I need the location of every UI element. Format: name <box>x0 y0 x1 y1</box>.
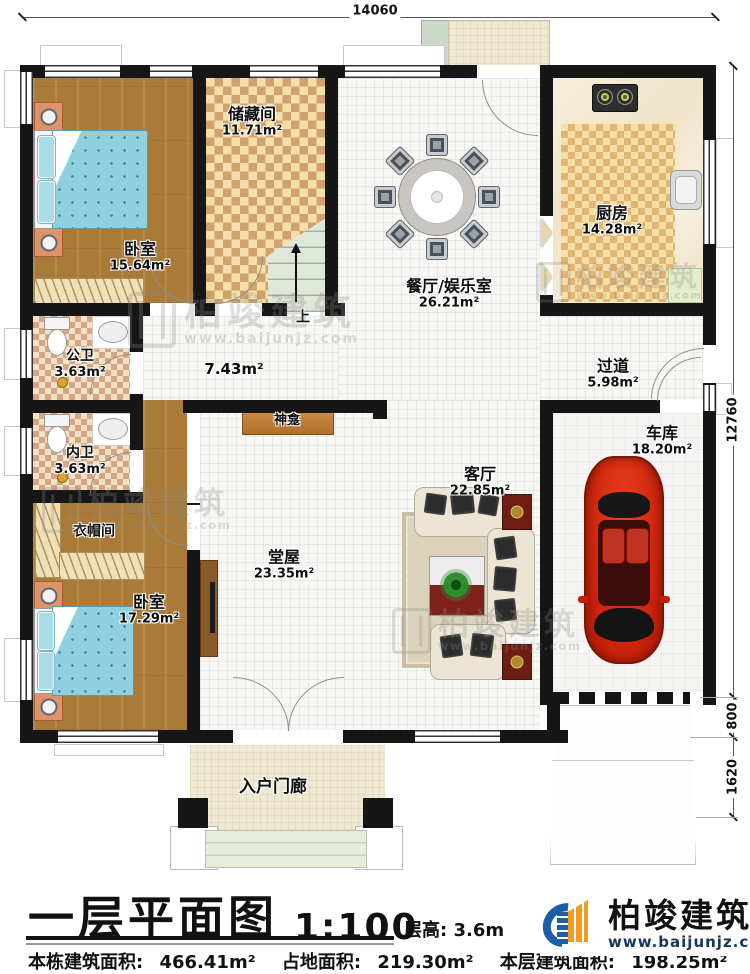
room-label-storage: 储藏间11.71m² <box>222 105 282 140</box>
burner-icon <box>617 89 633 105</box>
garage-door <box>553 692 690 704</box>
wall-garage-corner <box>547 692 560 743</box>
door-opening <box>150 303 195 316</box>
wall-garage-west <box>540 400 553 705</box>
burner-icon <box>597 89 613 105</box>
folding-door-icon <box>541 262 552 292</box>
kitchen-sink-basin <box>675 176 697 204</box>
window <box>20 428 33 474</box>
bath-sink <box>98 418 128 440</box>
driveway-line <box>552 760 694 761</box>
back-porch-floor <box>448 20 550 69</box>
stairs-arrow <box>295 250 297 302</box>
title-underline <box>26 936 394 940</box>
cloak-rack <box>35 502 61 578</box>
bath-sink <box>98 321 128 343</box>
dimension-extension <box>700 697 738 698</box>
sofa <box>487 528 535 634</box>
sofa-cushion <box>440 634 464 659</box>
plan-scale: 1:100 <box>294 907 419 948</box>
dimension-label-800: 800 <box>726 699 741 732</box>
wall-corridor-north <box>262 303 287 316</box>
wall-bath-divider <box>20 400 143 413</box>
room-label-main-hall: 堂屋23.35m² <box>254 548 314 583</box>
logo-icon <box>544 896 600 954</box>
title-underline-thin <box>26 943 394 945</box>
sofa-cushion <box>424 493 448 516</box>
lamp-icon <box>40 587 57 604</box>
dimension-label-right: 12760 <box>726 394 741 445</box>
dimension-extension <box>696 817 738 818</box>
logo-building-blue-icon <box>557 912 568 944</box>
window <box>415 730 500 743</box>
side-table <box>502 494 532 530</box>
pillow <box>38 181 55 223</box>
sofa-cushion <box>470 633 495 659</box>
room-label-dining: 餐厅/娱乐室26.21m² <box>406 277 492 312</box>
car-seat <box>602 528 625 564</box>
window <box>703 140 716 244</box>
dimension-extension <box>690 737 738 738</box>
floor-height: 层高: 3.6m <box>404 916 504 942</box>
window <box>250 65 318 78</box>
room-label-bedroom1: 卧室15.64m² <box>110 240 170 275</box>
company-website: www.baijunjz.com <box>608 933 750 951</box>
door-opening <box>130 450 143 492</box>
company-name: 柏竣建筑 <box>608 899 750 934</box>
window <box>20 330 33 378</box>
window <box>58 730 158 743</box>
nightstand <box>34 692 63 721</box>
bed <box>52 130 148 229</box>
plant-icon <box>440 569 472 601</box>
dining-chair <box>478 186 500 208</box>
room-label-shrine: 神龛 <box>274 413 300 429</box>
door-opening <box>130 352 143 394</box>
wall-kitchen-south <box>540 303 716 316</box>
wall-kitchen-west <box>540 78 553 216</box>
car-rear-window <box>598 492 650 518</box>
kitchen-cabinet <box>668 268 702 303</box>
dimension-label-top: 14060 <box>349 4 400 19</box>
room-label-corridor: 7.43m² <box>204 360 263 378</box>
dining-table-center <box>431 191 443 203</box>
room-label-hallway: 过道5.98m² <box>587 357 638 392</box>
wardrobe <box>34 278 144 305</box>
room-label-garage: 车库18.20m² <box>632 424 692 459</box>
stairs-up-label: 上 <box>296 310 310 327</box>
wall-corridor-north <box>195 303 215 316</box>
nightstand <box>34 102 63 131</box>
pillow <box>38 652 54 690</box>
wall-garage-north <box>540 400 660 413</box>
room-label-cloakroom: 衣帽间 <box>73 524 115 541</box>
sofa-cushion <box>493 566 517 592</box>
window-sill <box>40 45 122 67</box>
wall-storage-dining <box>325 78 338 312</box>
dimension-label-1620: 1620 <box>726 756 741 798</box>
sofa-cushion <box>494 536 518 561</box>
car-seat <box>626 528 649 564</box>
pillow <box>38 612 54 650</box>
side-table <box>502 644 532 680</box>
wall-shrine-stub <box>373 411 387 419</box>
stairs-arrowhead-icon <box>291 243 301 253</box>
window <box>150 65 192 78</box>
dining-chair <box>426 238 448 260</box>
window <box>20 640 33 700</box>
car <box>584 456 664 664</box>
room-label-living: 客厅22.85m² <box>450 465 510 500</box>
pillow <box>38 136 55 178</box>
lamp-icon <box>40 698 57 715</box>
company-logo: 柏竣建筑 www.baijunjz.com <box>540 894 750 956</box>
title-block: 一层平面图 1:100 层高: 3.6m 本栋建筑面积: 466.41m² 占地… <box>0 878 750 974</box>
lamp-icon <box>40 108 57 125</box>
car-windshield <box>594 608 654 642</box>
floor-vestibule <box>143 400 187 503</box>
sofa <box>430 624 506 680</box>
window <box>45 65 120 78</box>
door-opening <box>233 730 343 743</box>
sofa-cushion <box>494 598 517 622</box>
lamp-icon <box>40 234 57 251</box>
door-opening <box>477 65 540 78</box>
room-label-bath-private: 内卫3.63m² <box>54 445 105 477</box>
porch-steps <box>205 830 367 868</box>
wall-shrine <box>183 400 387 413</box>
wall-corridor-north <box>325 303 345 316</box>
floor-plan-canvas: 卧室15.64m² 储藏间11.71m² 餐厅/娱乐室26.21m² 厨房14.… <box>0 0 750 974</box>
car-mirror-icon <box>659 596 670 603</box>
door-opening <box>215 303 262 316</box>
wall-corridor-north <box>20 303 150 316</box>
car-mirror-icon <box>578 596 589 603</box>
room-label-kitchen: 厨房14.28m² <box>582 204 642 239</box>
folding-door-icon <box>541 218 552 248</box>
window-sill <box>343 45 445 67</box>
window <box>703 385 716 411</box>
room-label-bedroom2: 卧室17.29m² <box>119 593 179 628</box>
dining-chair <box>426 134 448 156</box>
window <box>20 72 33 124</box>
window-sill <box>54 744 164 756</box>
room-label-bath-public: 公卫3.63m² <box>54 348 105 380</box>
gold-ring-icon <box>511 656 524 669</box>
room-label-porch: 入户门廊 <box>239 777 307 797</box>
tv-icon <box>210 582 215 633</box>
dining-chair <box>374 186 396 208</box>
door-opening <box>660 400 703 413</box>
window <box>345 65 440 78</box>
gold-ring-icon <box>511 506 524 519</box>
porch-pillar <box>363 798 393 828</box>
driveway <box>550 705 696 865</box>
window-sill <box>716 138 734 248</box>
nightstand <box>34 228 63 257</box>
door-opening <box>187 505 200 550</box>
door-opening <box>703 345 716 383</box>
cloak-rack <box>59 552 145 580</box>
tv-cabinet <box>200 560 218 657</box>
porch-pillar <box>178 798 208 828</box>
